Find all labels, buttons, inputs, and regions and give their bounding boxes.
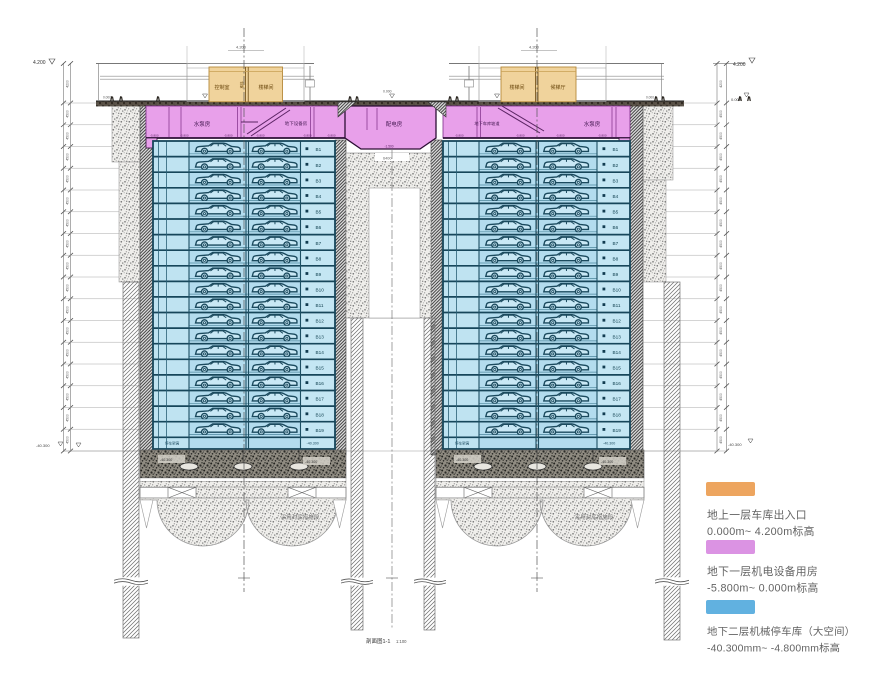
svg-text:地下车库坡道: 地下车库坡道 <box>474 120 500 127</box>
svg-text:B3: B3 <box>316 178 322 183</box>
svg-text:4500: 4500 <box>719 197 723 205</box>
svg-text:-5.800m~ 0.000m标高: -5.800m~ 0.000m标高 <box>707 581 819 595</box>
svg-text:B19: B19 <box>316 428 325 433</box>
svg-text:0.000: 0.000 <box>383 90 392 94</box>
svg-text:4500: 4500 <box>719 371 723 379</box>
svg-text:B8: B8 <box>316 256 322 261</box>
svg-text:4500: 4500 <box>66 153 70 161</box>
svg-text:4500: 4500 <box>66 371 70 379</box>
svg-text:B15: B15 <box>613 366 622 371</box>
svg-text:-5.800: -5.800 <box>180 134 189 138</box>
svg-text:-5.800: -5.800 <box>516 134 525 138</box>
svg-text:4500: 4500 <box>66 110 70 118</box>
svg-text:B11: B11 <box>613 303 621 308</box>
svg-text:-40.300: -40.300 <box>36 443 50 448</box>
svg-text:4500: 4500 <box>66 349 70 357</box>
svg-text:B6: B6 <box>613 225 619 230</box>
svg-text:B5: B5 <box>613 210 619 215</box>
svg-text:-5.800: -5.800 <box>256 134 265 138</box>
svg-text:B14: B14 <box>316 350 325 355</box>
svg-text:-40.300: -40.300 <box>307 442 319 446</box>
svg-text:4500: 4500 <box>719 132 723 140</box>
svg-text:-40.300mm~ -4.800mm标高: -40.300mm~ -4.800mm标高 <box>707 642 840 655</box>
svg-text:B10: B10 <box>316 288 325 293</box>
svg-text:B14: B14 <box>613 350 622 355</box>
svg-text:-40.300: -40.300 <box>728 442 742 447</box>
svg-text:B5: B5 <box>316 210 322 215</box>
svg-text:地上一层车库出入口: 地上一层车库出入口 <box>707 508 807 522</box>
svg-text:-5.800: -5.800 <box>455 134 464 138</box>
svg-text:B19: B19 <box>613 428 622 433</box>
svg-text:地下设备房: 地下设备房 <box>285 120 308 127</box>
svg-text:0.000: 0.000 <box>103 96 111 100</box>
svg-text:采用封底措施段: 采用封底措施段 <box>281 513 320 521</box>
svg-text:-5.800: -5.800 <box>556 134 565 138</box>
svg-text:候梯厅: 候梯厅 <box>550 84 565 91</box>
svg-text:-5.800: -5.800 <box>598 134 607 138</box>
svg-text:4500: 4500 <box>719 306 723 314</box>
svg-text:B16: B16 <box>316 381 325 386</box>
svg-text:4500: 4500 <box>719 436 723 444</box>
svg-text:4500: 4500 <box>66 414 70 422</box>
svg-text:B7: B7 <box>613 241 619 246</box>
svg-text:-1.500: -1.500 <box>384 145 393 149</box>
svg-text:B12: B12 <box>316 319 325 324</box>
svg-text:B4: B4 <box>613 194 619 199</box>
svg-text:-5.800: -5.800 <box>150 134 159 138</box>
svg-text:B2: B2 <box>613 163 619 168</box>
svg-text:水泵房: 水泵房 <box>194 120 211 128</box>
svg-text:4500: 4500 <box>66 197 70 205</box>
svg-text:B6: B6 <box>316 225 322 230</box>
svg-text:B4: B4 <box>316 194 322 199</box>
svg-text:B15: B15 <box>316 366 325 371</box>
svg-text:4500: 4500 <box>719 327 723 335</box>
svg-text:采用封底措施段: 采用封底措施段 <box>575 513 614 521</box>
svg-text:B17: B17 <box>316 397 325 402</box>
svg-text:4500: 4500 <box>719 349 723 357</box>
svg-text:4.200: 4.200 <box>33 60 46 66</box>
svg-text:4500: 4500 <box>66 219 70 227</box>
svg-text:6400: 6400 <box>383 157 391 161</box>
svg-text:-40.300: -40.300 <box>603 442 615 446</box>
svg-text:B9: B9 <box>613 272 619 277</box>
svg-text:B1: B1 <box>316 147 322 152</box>
svg-text:4500: 4500 <box>719 175 723 183</box>
svg-text:4500: 4500 <box>719 393 723 401</box>
svg-text:控制室: 控制室 <box>214 84 229 91</box>
svg-text:楼梯间: 楼梯间 <box>258 84 273 91</box>
svg-text:4500: 4500 <box>719 284 723 292</box>
svg-text:B10: B10 <box>613 288 622 293</box>
svg-text:楼梯: 楼梯 <box>239 81 244 88</box>
svg-text:4500: 4500 <box>66 306 70 314</box>
svg-text:0.000: 0.000 <box>646 96 654 100</box>
svg-text:B13: B13 <box>316 334 325 339</box>
svg-text:-5.800: -5.800 <box>224 134 233 138</box>
svg-text:4200: 4200 <box>66 80 70 88</box>
svg-text:4500: 4500 <box>66 284 70 292</box>
svg-text:停车架高: 停车架高 <box>165 441 180 446</box>
svg-text:B9: B9 <box>316 272 322 277</box>
svg-text:地下一层机电设备用房: 地下一层机电设备用房 <box>707 564 818 578</box>
svg-text:地下二层机械停车库（大空间）: 地下二层机械停车库（大空间） <box>707 625 855 638</box>
svg-text:B12: B12 <box>613 319 622 324</box>
svg-text:4500: 4500 <box>66 132 70 140</box>
svg-text:4500: 4500 <box>66 436 70 444</box>
svg-text:-5.800: -5.800 <box>303 134 312 138</box>
svg-text:4.200: 4.200 <box>529 45 540 50</box>
svg-text:4500: 4500 <box>719 414 723 422</box>
svg-text:停车架高: 停车架高 <box>455 441 470 446</box>
svg-text:B8: B8 <box>613 256 619 261</box>
svg-text:4500: 4500 <box>66 175 70 183</box>
svg-text:4500: 4500 <box>719 240 723 248</box>
svg-text:4500: 4500 <box>66 262 70 270</box>
svg-text:B1: B1 <box>613 147 619 152</box>
svg-text:配电房: 配电房 <box>386 120 403 128</box>
svg-text:-40.300: -40.300 <box>305 460 317 464</box>
svg-text:4500: 4500 <box>66 327 70 335</box>
svg-text:B17: B17 <box>613 397 622 402</box>
svg-text:B18: B18 <box>316 412 325 417</box>
svg-text:楼梯间: 楼梯间 <box>509 84 524 91</box>
svg-text:4.200: 4.200 <box>236 45 247 50</box>
svg-text:4500: 4500 <box>719 110 723 118</box>
svg-text:4500: 4500 <box>66 393 70 401</box>
svg-text:-40.300: -40.300 <box>160 458 172 462</box>
svg-text:4500: 4500 <box>719 153 723 161</box>
svg-text:B16: B16 <box>613 381 622 386</box>
svg-text:剖面图1-1: 剖面图1-1 <box>366 637 390 645</box>
svg-text:水泵房: 水泵房 <box>584 120 601 128</box>
svg-text:-40.300: -40.300 <box>456 458 468 462</box>
svg-text:B11: B11 <box>316 303 324 308</box>
svg-text:-5.800: -5.800 <box>327 134 336 138</box>
svg-text:B7: B7 <box>316 241 322 246</box>
svg-text:4500: 4500 <box>719 262 723 270</box>
svg-text:B18: B18 <box>613 412 622 417</box>
svg-text:B13: B13 <box>613 334 622 339</box>
svg-text:0.000m~ 4.200m标高: 0.000m~ 4.200m标高 <box>707 524 815 538</box>
svg-text:B3: B3 <box>613 178 619 183</box>
svg-text:B2: B2 <box>316 163 322 168</box>
svg-text:4.200: 4.200 <box>733 62 746 68</box>
svg-text:-40.300: -40.300 <box>601 460 613 464</box>
svg-text:1:100: 1:100 <box>396 639 407 644</box>
svg-text:4500: 4500 <box>719 219 723 227</box>
svg-text:4200: 4200 <box>719 80 723 88</box>
svg-text:4500: 4500 <box>66 240 70 248</box>
